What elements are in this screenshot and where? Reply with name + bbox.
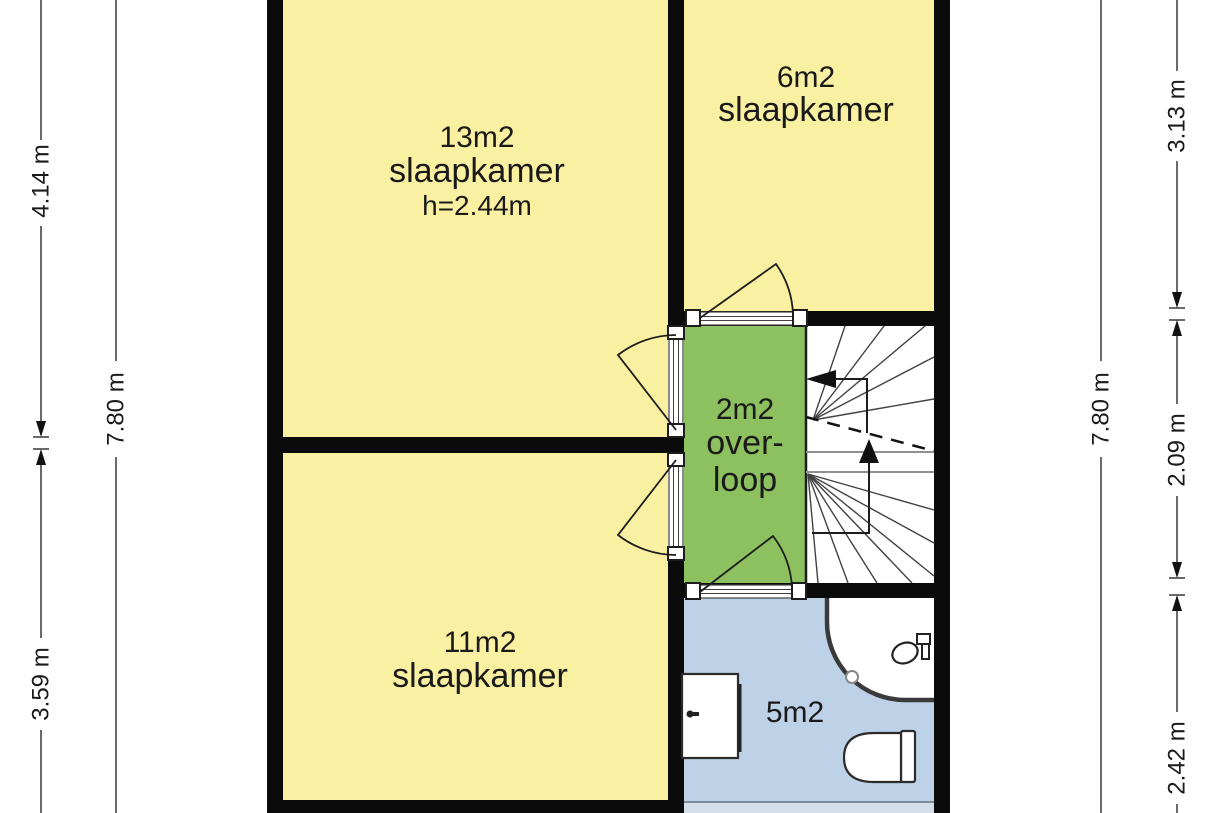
cabinet-icon	[682, 674, 740, 758]
dimension-arrow-down	[36, 421, 46, 437]
landing-name-line2: loop	[713, 461, 777, 499]
toilet-icon	[844, 731, 915, 782]
shower-drain-icon	[846, 671, 858, 683]
dimension-arrow-up	[36, 449, 46, 465]
dimension-label: 3.13 m	[1164, 79, 1191, 152]
dimension-right-total: 7.80 m	[1088, 0, 1115, 813]
door-jamb	[792, 583, 806, 599]
wall-right-exterior	[934, 0, 950, 813]
wall-left-exterior	[267, 0, 283, 813]
wall-middle-upper	[668, 0, 684, 326]
dimension-arrow-up	[1172, 595, 1182, 611]
dimension-left-bottom: 3.59 m	[28, 449, 55, 813]
dimension-right-top: 3.13 m	[1164, 0, 1191, 308]
dimension-label: 2.09 m	[1164, 413, 1191, 486]
dimension-left-total: 7.80 m	[103, 0, 130, 813]
landing-area-label: 2m2	[716, 393, 774, 426]
bathroom-area-label: 5m2	[766, 696, 824, 729]
toilet-cistern	[901, 731, 915, 782]
door-jamb	[668, 326, 684, 339]
dimension-right-middle: 2.09 m	[1164, 320, 1191, 578]
wall-bottom-exterior	[267, 800, 684, 813]
door-jamb	[668, 547, 684, 560]
door-jamb	[686, 583, 700, 599]
dimension-label: 7.80 m	[1088, 372, 1115, 445]
toilet-bowl	[844, 733, 901, 782]
bedroom6-name-label: slaapkamer	[718, 91, 894, 129]
door-jamb	[686, 310, 700, 326]
dimension-arrow-up	[1172, 320, 1182, 336]
dimension-arrow-down	[1172, 562, 1182, 578]
bedroom13-area-label: 13m2	[439, 121, 514, 154]
dimension-right-bottom: 2.42 m	[1164, 595, 1191, 813]
dimension-label: 3.59 m	[28, 647, 55, 720]
floorplan-drawing: 13m2 slaapkamer h=2.44m 6m2 slaapkamer 2…	[0, 0, 1220, 813]
wall-between-bedrooms	[267, 437, 684, 453]
bedroom11-area-label: 11m2	[444, 626, 517, 659]
floorplan-page: 13m2 slaapkamer h=2.44m 6m2 slaapkamer 2…	[0, 0, 1220, 813]
dimension-arrow-down	[1172, 292, 1182, 308]
door-jamb	[668, 424, 684, 437]
bathroom-window-strip	[684, 802, 934, 813]
bedroom13-name-label: slaapkamer	[389, 152, 565, 190]
door-jamb	[668, 453, 684, 466]
dimension-label: 4.14 m	[28, 144, 55, 217]
bedroom13-height-label: h=2.44m	[422, 190, 532, 221]
dimension-left-top: 4.14 m	[28, 0, 55, 437]
door-jamb	[793, 310, 807, 326]
bedroom6-area-label: 6m2	[777, 61, 835, 94]
bedroom11-name-label: slaapkamer	[392, 657, 568, 695]
room-bedroom-6	[684, 0, 934, 311]
landing-name-line1: over-	[706, 424, 783, 462]
dimension-label: 2.42 m	[1164, 721, 1191, 794]
dimension-label: 7.80 m	[103, 372, 130, 445]
